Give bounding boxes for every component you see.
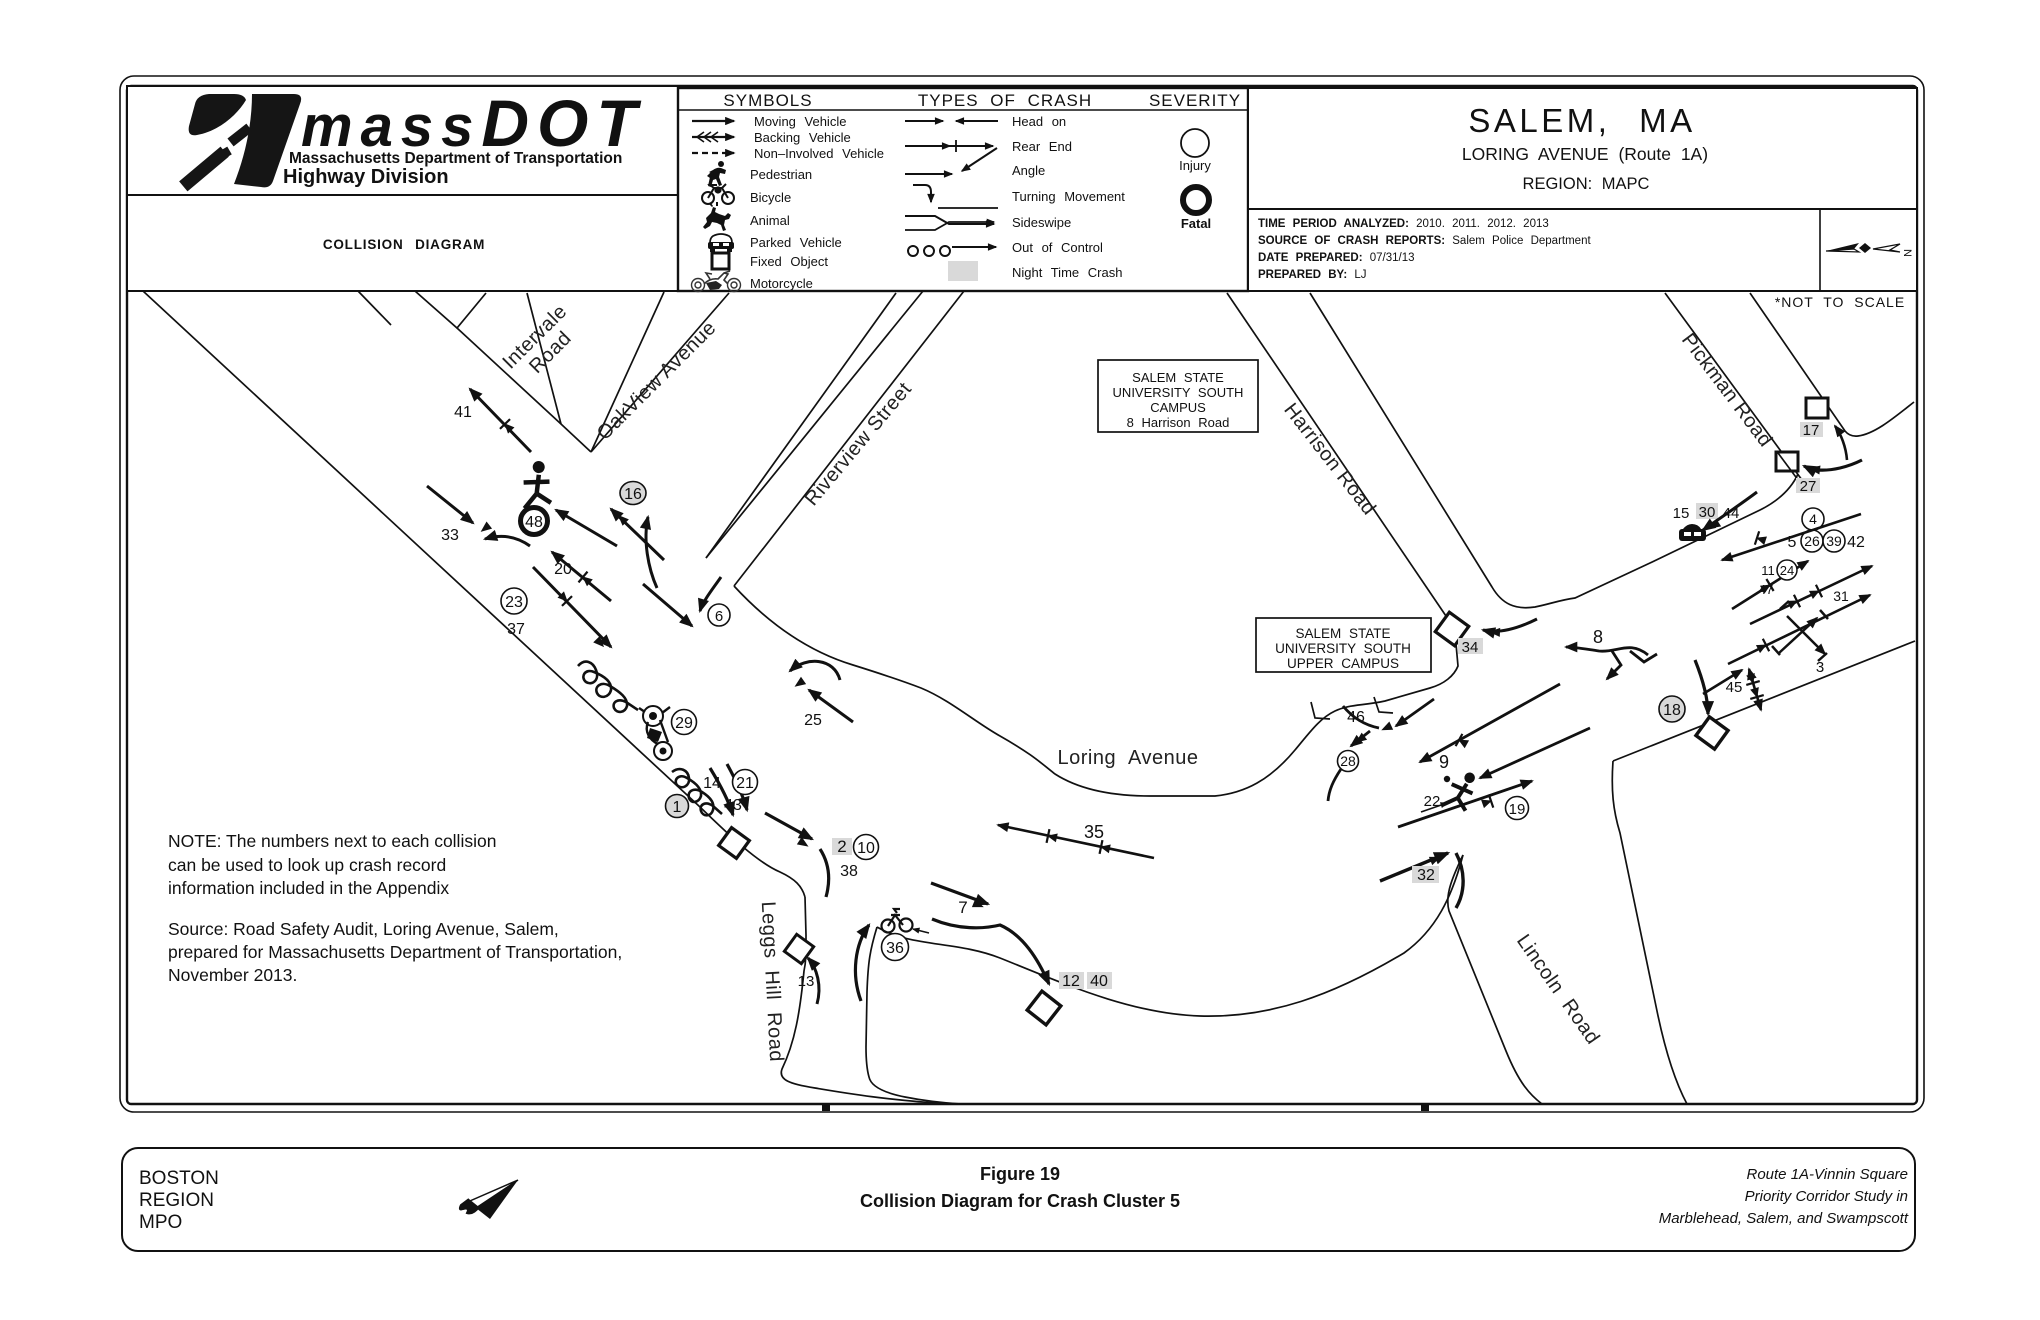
svg-text:Injury: Injury: [1179, 158, 1211, 173]
svg-text:Fatal: Fatal: [1181, 216, 1211, 231]
svg-text:1: 1: [673, 799, 682, 816]
svg-text:massDOT: massDOT: [301, 86, 645, 160]
svg-text:SALEM, MA: SALEM, MA: [1468, 102, 1695, 139]
svg-text:31: 31: [1833, 588, 1849, 604]
svg-text:TYPES OF CRASH: TYPES OF CRASH: [918, 91, 1092, 110]
svg-text:SOURCE OF CRASH REPORTS: Salem: SOURCE OF CRASH REPORTS: Salem Police De…: [1258, 235, 1591, 247]
svg-text:N: N: [1901, 249, 1913, 257]
svg-text:Loring Avenue: Loring Avenue: [1057, 747, 1198, 769]
svg-text:37: 37: [507, 621, 525, 638]
svg-text:47: 47: [1759, 582, 1773, 597]
svg-text:19: 19: [1509, 801, 1526, 818]
svg-text:Out of Control: Out of Control: [1012, 240, 1103, 255]
svg-text:12: 12: [1062, 973, 1080, 990]
svg-text:43: 43: [724, 797, 742, 814]
svg-text:Parked Vehicle: Parked Vehicle: [750, 235, 842, 250]
svg-text:Turning Movement: Turning Movement: [1012, 189, 1125, 204]
svg-text:38: 38: [840, 863, 858, 880]
svg-text:Non–Involved Vehicle: Non–Involved Vehicle: [754, 146, 884, 161]
svg-text:11: 11: [1761, 563, 1775, 578]
svg-text:23: 23: [505, 594, 523, 611]
svg-text:SEVERITY: SEVERITY: [1149, 91, 1241, 110]
svg-text:27: 27: [1800, 478, 1817, 495]
svg-text:SALEM STATE: SALEM STATE: [1132, 370, 1224, 385]
svg-text:18: 18: [1663, 702, 1681, 719]
svg-text:Marblehead, Salem, and Swampsc: Marblehead, Salem, and Swampscott: [1659, 1210, 1909, 1227]
svg-text:DATE PREPARED: 07/31/13: DATE PREPARED: 07/31/13: [1258, 252, 1415, 264]
svg-text:8 Harrison Road: 8 Harrison Road: [1127, 415, 1230, 430]
svg-text:UNIVERSITY SOUTH: UNIVERSITY SOUTH: [1113, 385, 1244, 400]
svg-text:13: 13: [798, 973, 815, 990]
svg-text:Bicycle: Bicycle: [750, 190, 791, 205]
svg-text:UPPER CAMPUS: UPPER CAMPUS: [1287, 656, 1399, 671]
svg-text:6: 6: [715, 608, 723, 625]
svg-text:Route 1A-Vinnin Square: Route 1A-Vinnin Square: [1747, 1166, 1909, 1183]
svg-text:Sideswipe: Sideswipe: [1012, 215, 1071, 230]
svg-text:16: 16: [624, 486, 642, 503]
svg-text:48: 48: [525, 514, 543, 531]
svg-text:PREPARED BY: LJ: PREPARED BY: LJ: [1258, 269, 1367, 281]
svg-text:NOTE: The numbers next to eac: NOTE: The numbers next to each collision: [168, 831, 496, 851]
svg-text:21: 21: [736, 775, 754, 792]
svg-text:SALEM STATE: SALEM STATE: [1295, 626, 1390, 641]
svg-text:34: 34: [1462, 639, 1479, 656]
svg-text:Backing Vehicle: Backing Vehicle: [754, 130, 851, 145]
svg-text:41: 41: [454, 404, 472, 421]
svg-text:Highway Division: Highway Division: [283, 166, 449, 188]
svg-text:39: 39: [1826, 533, 1842, 549]
svg-text:10: 10: [857, 840, 875, 857]
svg-text:BOSTON: BOSTON: [139, 1168, 219, 1189]
svg-text:prepared for Massachusetts Dep: prepared for Massachusetts Department of…: [168, 942, 622, 962]
svg-text:17: 17: [1803, 422, 1820, 439]
svg-text:Head on: Head on: [1012, 114, 1066, 129]
svg-text:2: 2: [837, 837, 846, 856]
svg-text:Figure 19: Figure 19: [980, 1164, 1060, 1184]
svg-text:Angle: Angle: [1012, 163, 1045, 178]
svg-text:25: 25: [804, 712, 822, 729]
svg-text:28: 28: [1340, 753, 1356, 769]
svg-text:CAMPUS: CAMPUS: [1150, 400, 1206, 415]
svg-text:can be used to look up crash r: can be used to look up crash record: [168, 855, 446, 875]
svg-text:22: 22: [1424, 793, 1441, 810]
svg-text:8: 8: [1593, 627, 1603, 647]
svg-text:7: 7: [958, 898, 967, 917]
svg-text:Animal: Animal: [750, 213, 790, 228]
svg-text:LORING AVENUE (Route 1A): LORING AVENUE (Route 1A): [1462, 144, 1708, 164]
svg-text:35: 35: [1084, 822, 1104, 842]
svg-text:9: 9: [1439, 752, 1449, 772]
svg-text:information included in the Ap: information included in the Appendix: [168, 878, 449, 898]
svg-text:Moving Vehicle: Moving Vehicle: [754, 114, 846, 129]
svg-text:20: 20: [554, 561, 572, 578]
svg-text:40: 40: [1090, 973, 1108, 990]
svg-text:Pedestrian: Pedestrian: [750, 167, 812, 182]
svg-text:15: 15: [1673, 505, 1690, 522]
svg-text:REGION: REGION: [139, 1190, 214, 1211]
svg-text:30: 30: [1699, 504, 1716, 521]
svg-text:UNIVERSITY SOUTH: UNIVERSITY SOUTH: [1275, 641, 1411, 656]
svg-text:Priority Corridor Study in: Priority Corridor Study in: [1745, 1188, 1908, 1205]
svg-text:24: 24: [1780, 563, 1794, 578]
svg-text:November 2013.: November 2013.: [168, 965, 297, 985]
svg-text:*NOT TO SCALE: *NOT TO SCALE: [1775, 294, 1905, 310]
svg-text:4: 4: [1809, 511, 1817, 527]
svg-text:COLLISION DIAGRAM: COLLISION DIAGRAM: [323, 237, 485, 252]
svg-text:MPO: MPO: [139, 1212, 182, 1233]
svg-text:46: 46: [1347, 709, 1365, 726]
svg-text:14: 14: [703, 775, 721, 792]
svg-text:Night Time Crash: Night Time Crash: [1012, 265, 1122, 280]
svg-text:REGION: MAPC: REGION: MAPC: [1523, 175, 1650, 193]
svg-text:36: 36: [886, 940, 904, 957]
svg-text:29: 29: [675, 715, 693, 732]
svg-text:TIME PERIOD ANALYZED: 2010. 20: TIME PERIOD ANALYZED: 2010. 2011. 2012. …: [1258, 218, 1549, 230]
svg-text:Source: Road Safety Audit, L: Source: Road Safety Audit, Loring Avenue…: [168, 919, 559, 939]
svg-text:3: 3: [1816, 659, 1824, 676]
svg-text:Motorcycle: Motorcycle: [750, 276, 813, 291]
svg-text:42: 42: [1847, 534, 1865, 551]
svg-text:Collision Diagram for Crash Cl: Collision Diagram for Crash Cluster 5: [860, 1191, 1180, 1211]
svg-text:Rear End: Rear End: [1012, 139, 1072, 154]
svg-text:Massachusetts Department of Tr: Massachusetts Department of Transportati…: [289, 150, 622, 167]
svg-text:26: 26: [1804, 533, 1820, 549]
svg-text:32: 32: [1417, 867, 1435, 884]
svg-text:33: 33: [441, 527, 459, 544]
svg-text:SYMBOLS: SYMBOLS: [723, 91, 812, 110]
svg-text:Fixed Object: Fixed Object: [750, 254, 828, 269]
svg-text:45: 45: [1726, 679, 1743, 696]
